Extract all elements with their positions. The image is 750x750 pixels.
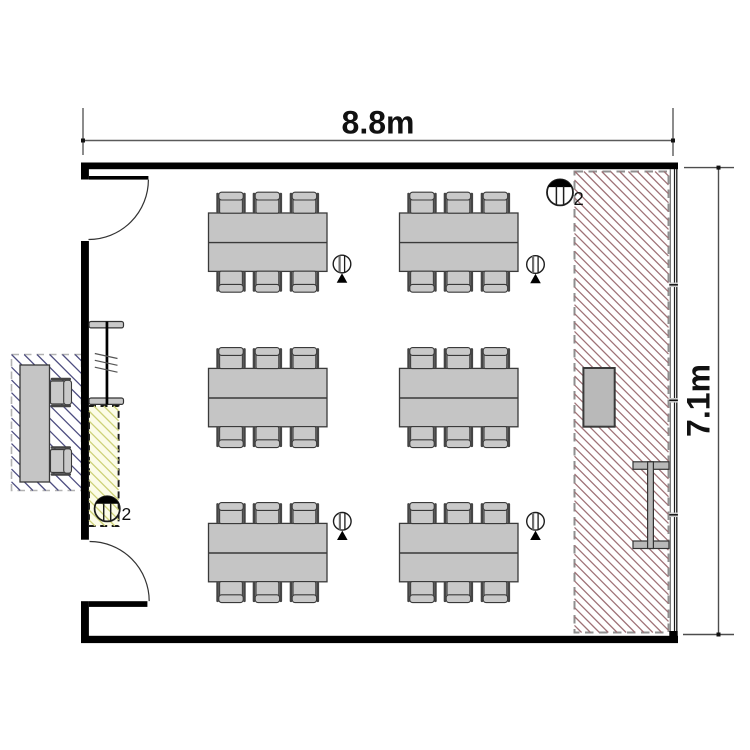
svg-text:7.1m: 7.1m <box>681 364 717 437</box>
svg-text:2: 2 <box>574 188 584 209</box>
svg-text:2: 2 <box>122 504 132 524</box>
svg-text:8.8m: 8.8m <box>342 105 415 141</box>
